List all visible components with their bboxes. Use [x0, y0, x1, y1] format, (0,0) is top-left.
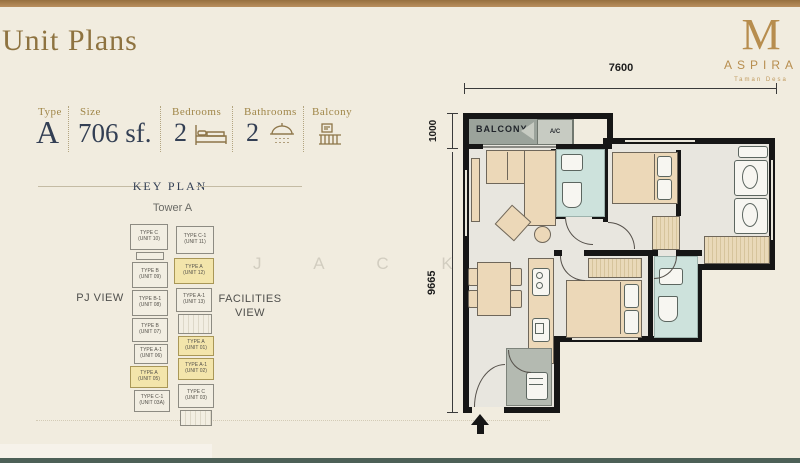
keyplan-unit-block: TYPE A(UNIT 05) — [130, 366, 168, 388]
keyplan-unit-block: TYPE A(UNIT 12) — [174, 258, 214, 284]
facilities-grid-block — [180, 410, 212, 426]
wall — [648, 250, 653, 342]
wall — [463, 113, 612, 119]
dim-height: 9665 — [426, 152, 438, 413]
dining-chair — [510, 268, 522, 286]
bed-icon — [194, 124, 228, 146]
watermark-text: J A C K — [253, 254, 477, 274]
pillow — [624, 310, 639, 334]
facilities-grid-block — [178, 314, 212, 334]
dim-tick — [776, 83, 777, 94]
entry-arrow-icon — [477, 425, 484, 434]
wardrobe — [652, 216, 680, 250]
window — [771, 160, 773, 240]
washer — [526, 372, 548, 400]
tv-console — [471, 158, 480, 222]
keyplan-core-block — [136, 252, 164, 260]
keyplan-unit-block: TYPE C-1(UNIT 11) — [176, 226, 214, 254]
watermark-band — [0, 444, 212, 458]
entry-arrow-icon — [471, 414, 489, 425]
bottom-accent-bar — [0, 458, 800, 463]
dim-tick — [447, 148, 458, 149]
keyplan-unit-block: TYPE C(UNIT 10) — [130, 224, 168, 250]
keyplan-unit-block: TYPE B(UNIT 09) — [132, 262, 168, 288]
wardrobe — [704, 236, 770, 264]
keyplan-unit-block: TYPE C(UNIT 03) — [178, 384, 214, 408]
sofa-cushion-line — [507, 152, 508, 180]
toilet-fixture — [562, 182, 582, 208]
spec-separator — [68, 106, 69, 152]
wall — [504, 407, 560, 413]
sofa-chaise — [524, 150, 556, 226]
balcony-icon — [316, 122, 344, 148]
spec-separator — [160, 106, 161, 152]
top-accent-bar — [0, 0, 800, 7]
keyplan-unit-block: TYPE A-1(UNIT 06) — [134, 344, 168, 364]
window — [625, 140, 695, 142]
bathrooms-value: 2 — [246, 118, 259, 148]
balcony-label: BALCONY — [476, 124, 528, 134]
burner — [536, 282, 543, 289]
window — [572, 338, 638, 340]
bathrooms-label: Bathrooms — [244, 106, 297, 118]
washer-line — [529, 378, 543, 379]
burner — [536, 272, 543, 279]
dim-balcony: 1000 — [428, 114, 439, 148]
keyplan-unit-block: TYPE B-1(UNIT 08) — [132, 290, 168, 316]
blanket-line — [620, 282, 621, 334]
keyplan-unit-block: TYPE A(UNIT 01) — [178, 336, 214, 356]
dining-chair — [510, 290, 522, 308]
pillow — [657, 179, 672, 200]
shower-icon — [268, 122, 296, 148]
brand-monogram-icon: M — [722, 12, 800, 58]
balcony-slider-marker-icon — [521, 122, 534, 140]
bedrooms-value: 2 — [174, 118, 187, 148]
bedrooms-label: Bedrooms — [172, 106, 221, 118]
keyplan-unit-block: TYPE A-1(UNIT 02) — [178, 358, 214, 380]
toilet-fixture — [658, 296, 678, 322]
side-table — [534, 226, 551, 243]
facilities-view-label: FACILITIESVIEW — [210, 292, 290, 321]
appliance-oval — [742, 165, 758, 189]
dim-tick — [447, 113, 458, 114]
wall — [463, 407, 472, 413]
keyplan-unit-block: TYPE B(UNIT 07) — [132, 318, 168, 342]
appliance-oval — [742, 203, 758, 227]
keyplan-unit-block: TYPE C-1(UNIT 03A) — [134, 390, 170, 412]
pj-view-label: PJ VIEW — [70, 292, 130, 304]
wardrobe — [588, 258, 642, 278]
brand-tagline: Taman Desa — [722, 77, 800, 83]
size-label: Size — [80, 106, 101, 118]
wall — [463, 113, 469, 413]
washer-line — [529, 384, 543, 385]
sink-basin — [535, 323, 544, 334]
wall — [696, 264, 775, 270]
pillow — [624, 284, 639, 308]
sliding-door-track — [483, 146, 556, 148]
size-value: 706 sf. — [78, 118, 152, 149]
dining-table — [477, 262, 511, 316]
spec-separator — [232, 106, 233, 152]
sink-fixture — [561, 154, 583, 171]
dim-line-left — [452, 152, 453, 413]
keyplan-unit-block: TYPE A-1(UNIT 13) — [176, 288, 212, 312]
pillow — [657, 156, 672, 177]
page-title: Unit Plans — [2, 24, 138, 58]
dim-line-top — [465, 88, 777, 89]
ac-ledge: A/C — [537, 119, 573, 145]
dim-tick — [464, 83, 465, 94]
wall — [463, 144, 483, 149]
dim-line-balcony — [452, 114, 453, 148]
type-value: A — [36, 114, 59, 151]
wall — [584, 250, 658, 256]
dim-width: 7600 — [465, 62, 777, 74]
tower-label: Tower A — [100, 202, 245, 214]
dim-tick — [447, 412, 458, 413]
spec-separator — [303, 106, 304, 152]
dresser-shelf — [738, 146, 768, 158]
keyplan-diagram: TYPE C(UNIT 10)TYPE C-1(UNIT 11)TYPE B(U… — [130, 218, 216, 414]
blanket-line — [654, 154, 655, 200]
balcony-spec-label: Balcony — [312, 106, 352, 118]
window — [465, 170, 467, 236]
keyplan-rule-right — [196, 186, 302, 187]
wall — [554, 336, 560, 413]
